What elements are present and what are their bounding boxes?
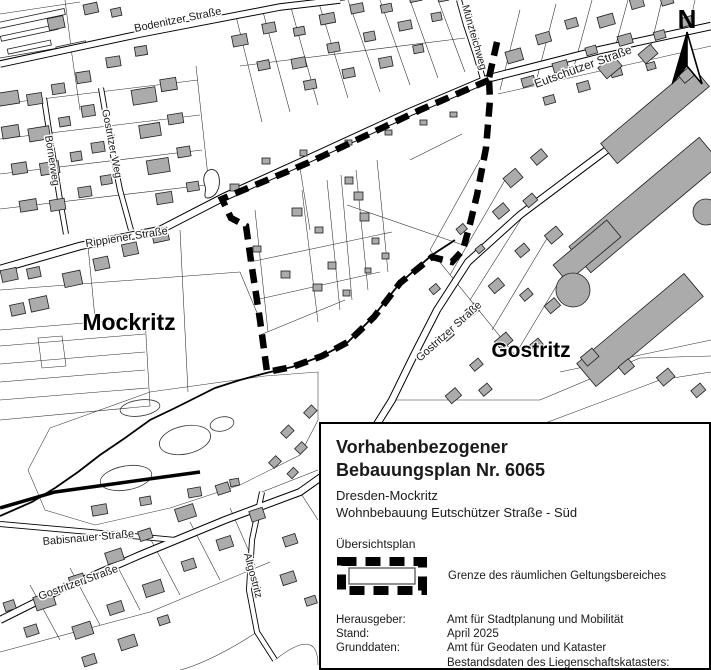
area-label-gostritz: Gostritz: [491, 339, 570, 362]
north-label: N: [678, 4, 697, 34]
plan-subtitle-project: Wohnbebauung Eutschützer Straße - Süd: [336, 504, 699, 521]
area-label-mockritz: Mockritz: [82, 309, 175, 335]
intersection-loop: [204, 169, 220, 198]
publisher-value: Amt für Stadtplanung und Mobilität: [447, 613, 699, 627]
plan-overview-page: Bodenitzer Straße Münzteichweg Eutschütz…: [0, 0, 711, 670]
street-label-altgostritz: Altgostritz: [241, 552, 265, 600]
date-value: April 2025: [447, 627, 699, 641]
date-label: Stand:: [336, 627, 447, 641]
basedata-value-2: Bestandsdaten des Liegenschaftskatasters…: [447, 656, 699, 670]
plan-meta: Herausgeber: Amt für Stadtplanung und Mo…: [336, 613, 699, 670]
plan-subtitle-district: Dresden-Mockritz: [336, 487, 699, 504]
basedata-value-1: Amt für Geodaten und Kataster: [447, 641, 699, 655]
street-label-boernerweg: Börnerweg: [42, 135, 62, 187]
plan-type-label: Übersichtsplan: [336, 537, 699, 551]
boundary-legend-symbol: [336, 556, 428, 596]
plan-title-line2: Bebauungsplan Nr. 6065: [336, 459, 699, 482]
basedata-values: Amt für Geodaten und Kataster Bestandsda…: [447, 641, 699, 670]
plan-title-line1: Vorhabenbezogener: [336, 436, 699, 459]
title-block: Vorhabenbezogener Bebauungsplan Nr. 6065…: [319, 422, 711, 670]
street-label-muenzteichweg: Münzteichweg: [459, 4, 489, 72]
basedata-label: Grunddaten:: [336, 641, 447, 670]
publisher-label: Herausgeber:: [336, 613, 447, 627]
street-label-gostritzer-strasse-sw: Gostritzer Straße: [37, 563, 120, 603]
boundary-legend-label: Grenze des räumlichen Geltungsbereiches: [448, 570, 666, 582]
